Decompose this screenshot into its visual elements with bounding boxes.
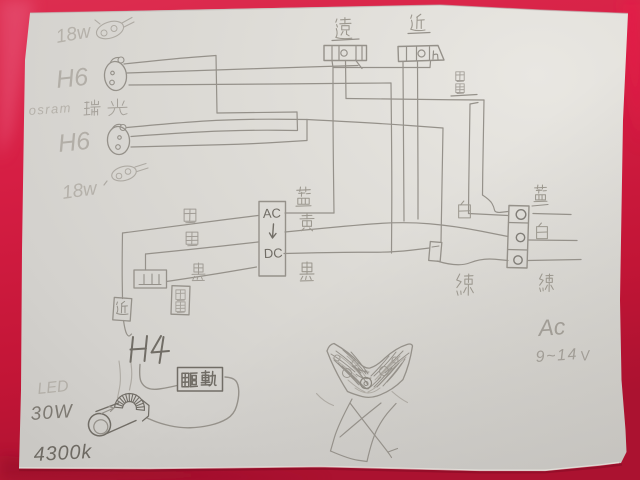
svg-text:9~14: 9~14 <box>535 346 579 366</box>
svg-text:osram: osram <box>28 100 72 118</box>
svg-text:LED: LED <box>37 378 70 398</box>
svg-text:DC: DC <box>264 245 283 261</box>
svg-text:AC: AC <box>263 205 282 221</box>
svg-text:4300k: 4300k <box>33 441 93 466</box>
svg-text:H6: H6 <box>55 63 90 94</box>
svg-text:Ac: Ac <box>536 313 567 341</box>
svg-text:30W: 30W <box>30 401 75 425</box>
svg-text:H6: H6 <box>57 127 92 158</box>
